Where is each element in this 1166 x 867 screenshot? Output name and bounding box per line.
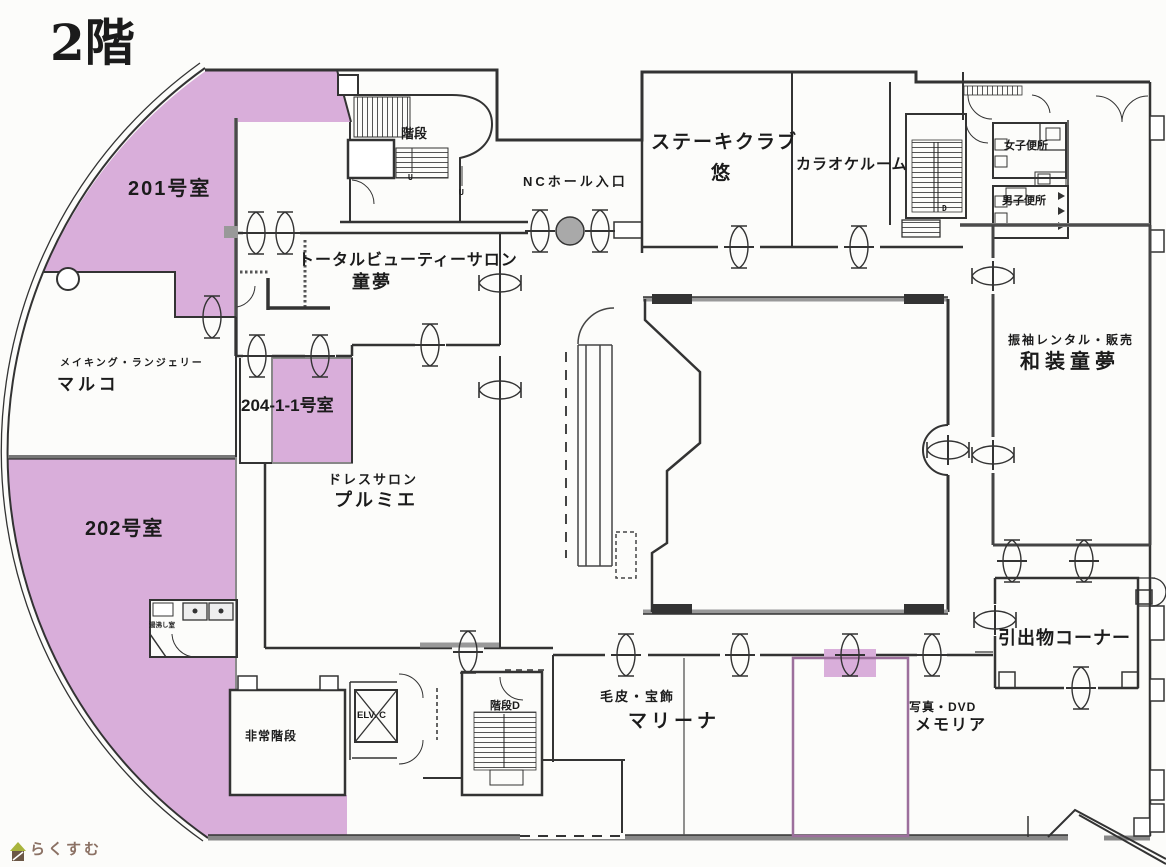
floor-plan-page: 2階 201号室 階段 NCホール入口 ステーキクラブ 悠 カラオケルーム 女子… [0,0,1166,867]
rakusumu-logo-icon [8,840,28,862]
fur-jewelry-label-line1: 毛皮・宝飾 [600,690,675,703]
marco-label-line2: マルコ [57,376,120,393]
beauty-salon-label-line2: 童夢 [352,273,392,291]
kimono-room-walls [993,225,1150,545]
stairs-d-label: 階段D [490,701,520,712]
elevator-label: ELV. C [357,711,386,721]
double-door-icon [844,226,874,268]
stair-up-mark: U [408,174,413,182]
double-door-icon [611,634,641,676]
double-door-icon [724,226,754,268]
dress-salon-label-line1: ドレスサロン [328,473,418,486]
kimono-room-label-line2: 和装童夢 [1020,352,1120,372]
double-door-icon [917,634,947,676]
nc-hall-entrance-label: NCホール入口 [523,175,628,188]
hot-water-room-label: 湯沸し室 [149,623,175,630]
stairs-nw-label: 階段 [401,127,427,140]
double-door-icon [1066,667,1096,709]
entrance-column [556,217,584,245]
fur-jewelry-label-line2: マリーナ [628,712,720,731]
marco-label-line1: メイキング・ランジェリー [60,359,204,369]
nc-hall-walls [643,294,948,614]
emergency-stairs-label: 非常階段 [245,730,297,742]
double-door-icon [525,210,555,252]
double-door-icon [270,212,300,254]
photo-dvd-label-line2: メモリア [915,718,987,734]
karaoke-room-label: カラオケルーム [796,157,908,172]
nc-entrance-doors [525,210,615,252]
stair-down-mark: D [942,205,947,213]
kimono-room-label-line1: 振袖レンタル・販売 [1008,334,1134,346]
double-door-icon [241,212,271,254]
room-202-label: 202号室 [85,519,163,539]
stairwell-northwest [337,70,528,222]
gift-corner-label: 引出物コーナー [998,629,1131,647]
double-door-icon [972,261,1014,291]
steak-club-label-line2: 悠 [711,164,730,183]
mens-toilet-label: 男子便所 [1002,196,1046,207]
double-door-icon [927,435,969,465]
double-door-icon [972,440,1014,470]
memoria-door-highlight [824,649,876,677]
double-door-icon [415,324,445,366]
steak-club-label-line1: ステーキクラブ [651,133,798,152]
double-door-icon [479,268,521,298]
rakusumu-logo-text: らくすむ [30,842,102,857]
floor-title: 2階 [50,18,135,68]
floor-plan-drawing [0,0,1166,867]
womens-toilet-label: 女子便所 [1004,141,1048,152]
double-door-icon [585,210,615,252]
room-204-label: 204-1-1号室 [241,397,334,414]
double-door-icon [242,335,272,377]
beauty-salon-label-line1: トータルビューティーサロン [298,253,518,269]
dress-salon-label-line2: プルミエ [334,491,418,509]
room-201-label: 201号室 [128,179,211,199]
escalator [566,308,636,578]
double-door-icon [453,631,483,673]
double-door-icon [479,375,521,405]
photo-dvd-label-line1: 写真・DVD [909,701,976,713]
stair-up-mark: U [459,189,464,197]
double-door-icon [725,634,755,676]
